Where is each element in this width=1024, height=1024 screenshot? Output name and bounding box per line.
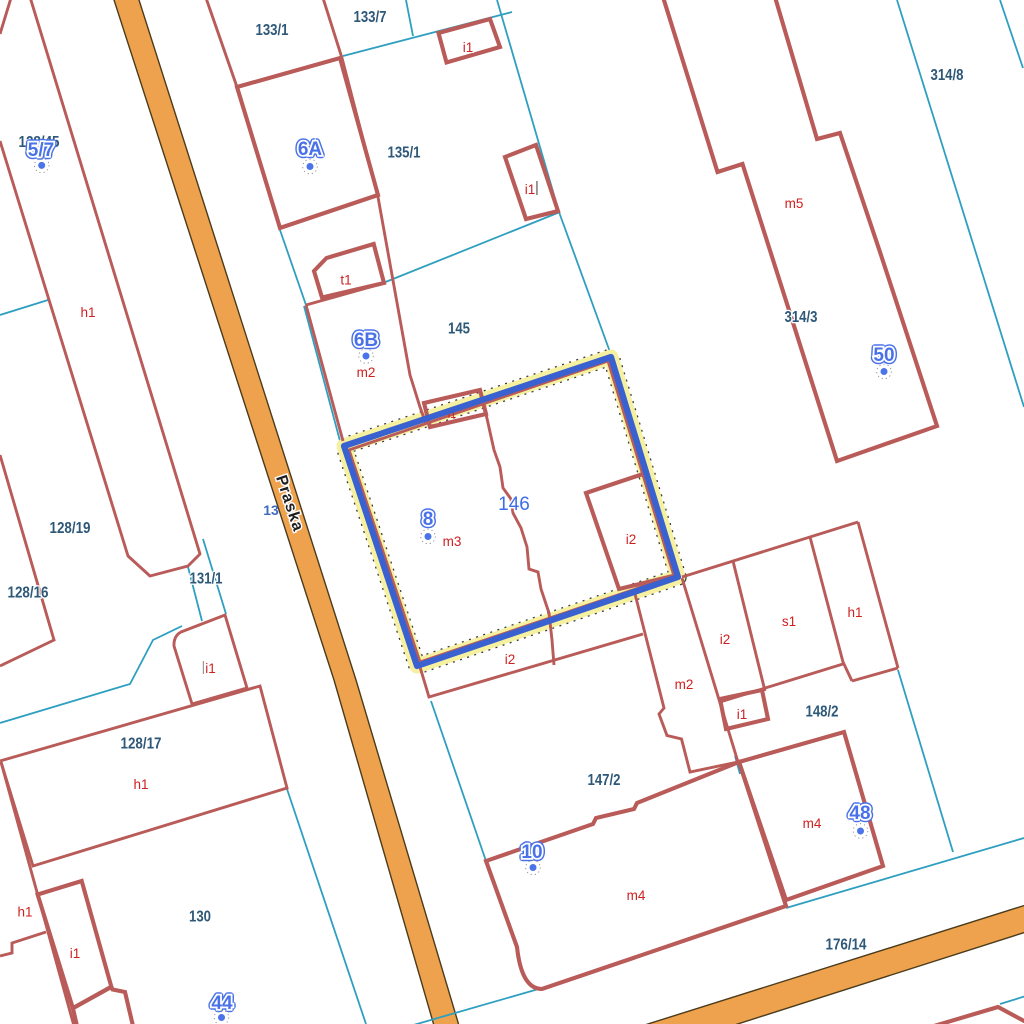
svg-text:133/1: 133/1 (256, 22, 289, 39)
svg-text:130: 130 (189, 909, 211, 926)
svg-text:i1: i1 (737, 707, 748, 722)
svg-text:m2: m2 (675, 677, 694, 692)
svg-text:6A: 6A (298, 139, 323, 160)
svg-text:h1: h1 (80, 305, 95, 320)
svg-text:314/8: 314/8 (931, 67, 964, 84)
svg-text:131/1: 131/1 (190, 571, 223, 588)
svg-text:13: 13 (263, 502, 279, 518)
svg-text:147/2: 147/2 (588, 772, 621, 789)
svg-text:128/16: 128/16 (8, 585, 49, 602)
svg-text:10: 10 (521, 842, 542, 863)
svg-text:h1: h1 (17, 905, 32, 920)
svg-text:145: 145 (448, 321, 470, 338)
svg-text:m5: m5 (785, 196, 804, 211)
svg-text:128/19: 128/19 (50, 520, 91, 537)
svg-text:50: 50 (873, 345, 894, 366)
svg-text:128/17: 128/17 (121, 736, 162, 753)
svg-text:8: 8 (423, 509, 434, 530)
svg-text:i1: i1 (525, 182, 536, 197)
svg-text:133/7: 133/7 (354, 9, 387, 26)
svg-text:148/2: 148/2 (806, 704, 839, 721)
svg-text:176/14: 176/14 (826, 937, 867, 954)
svg-text:146: 146 (498, 494, 530, 515)
svg-text:i1: i1 (70, 946, 81, 961)
svg-text:h1: h1 (847, 605, 862, 620)
svg-text:5/7: 5/7 (28, 140, 54, 161)
svg-text:i2: i2 (626, 532, 637, 547)
svg-text:i1: i1 (463, 40, 474, 55)
svg-text:m4: m4 (627, 888, 646, 903)
svg-text:314/3: 314/3 (785, 309, 818, 326)
svg-text:h1: h1 (133, 777, 148, 792)
svg-text:i1: i1 (205, 661, 216, 676)
svg-text:48: 48 (849, 803, 870, 824)
svg-text:i2: i2 (720, 632, 731, 647)
svg-text:m3: m3 (443, 534, 462, 549)
svg-text:i2: i2 (505, 652, 516, 667)
svg-text:m2: m2 (357, 365, 376, 380)
svg-text:s1: s1 (782, 614, 796, 629)
svg-text:135/1: 135/1 (388, 145, 421, 162)
svg-text:m4: m4 (803, 816, 822, 831)
svg-text:6B: 6B (354, 330, 378, 351)
svg-text:44: 44 (211, 993, 233, 1014)
svg-text:t1: t1 (340, 273, 351, 288)
